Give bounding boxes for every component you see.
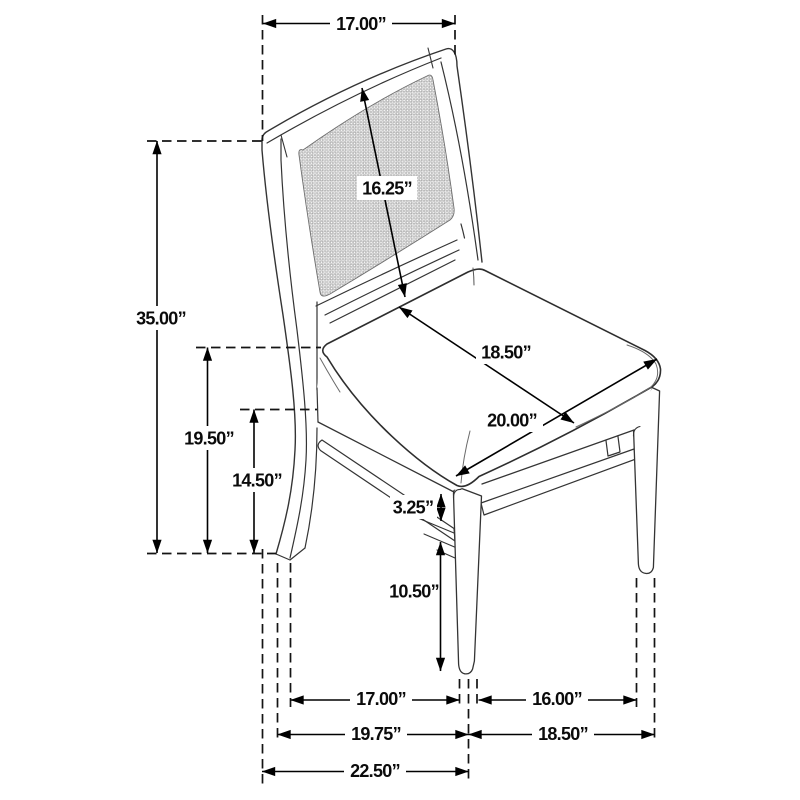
- svg-text:17.00”: 17.00”: [336, 14, 386, 34]
- svg-text:18.50”: 18.50”: [481, 343, 531, 363]
- svg-text:20.00”: 20.00”: [487, 411, 537, 431]
- svg-text:22.50”: 22.50”: [350, 761, 400, 781]
- svg-text:16.00”: 16.00”: [532, 689, 582, 709]
- svg-text:3.25”: 3.25”: [393, 498, 434, 518]
- svg-text:18.50”: 18.50”: [538, 724, 588, 744]
- svg-text:10.50”: 10.50”: [389, 582, 439, 602]
- svg-text:19.50”: 19.50”: [184, 429, 234, 449]
- svg-text:35.00”: 35.00”: [136, 309, 186, 329]
- svg-text:16.25”: 16.25”: [362, 179, 412, 199]
- svg-text:19.75”: 19.75”: [351, 724, 401, 744]
- svg-text:17.00”: 17.00”: [356, 689, 406, 709]
- svg-text:14.50”: 14.50”: [232, 471, 282, 491]
